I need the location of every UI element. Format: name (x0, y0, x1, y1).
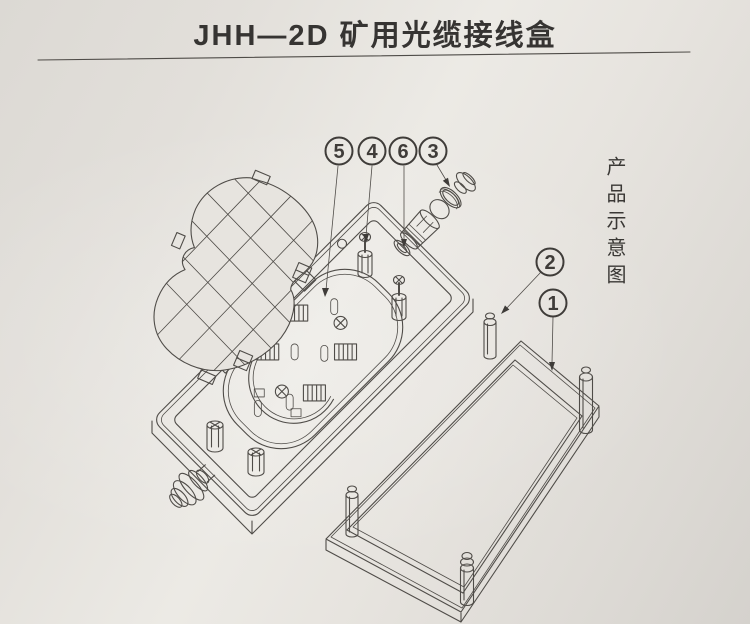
callout-6-number: 6 (397, 141, 408, 163)
box-cover (326, 313, 599, 622)
callout-6: 6 (390, 138, 417, 165)
cover-thickness-edge (331, 345, 595, 608)
gland-seal (426, 196, 453, 223)
gland-nut (437, 184, 465, 211)
cable-gland-exploded (390, 167, 481, 260)
callout-5-number: 5 (333, 141, 344, 163)
cover-post-1 (484, 313, 496, 359)
lid-outline (139, 161, 337, 394)
splice-holder-comb (335, 344, 357, 360)
leaders (322, 165, 555, 371)
catalog-page: JHH—2D 矿用光缆接线盒 产品示意图 (0, 0, 750, 624)
callout-2-number: 2 (544, 252, 555, 274)
leader-2 (501, 272, 541, 314)
cable-gland-side (161, 457, 221, 516)
splice-holder-comb (303, 385, 325, 401)
tray-screw (334, 316, 347, 329)
leader-3 (437, 165, 450, 187)
flange-hole (336, 237, 349, 250)
callout-3: 3 (420, 138, 447, 165)
callout-3-number: 3 (427, 141, 438, 163)
cover-depth-edge (326, 407, 599, 622)
splice-tray-cover (108, 143, 362, 412)
fiber-clips (250, 375, 305, 430)
leader-6 (401, 166, 407, 248)
callout-4-number: 4 (366, 141, 378, 163)
exploded-view-diagram: 5 4 6 3 2 1 (0, 0, 750, 624)
leader-1 (549, 317, 555, 371)
callout-2: 2 (537, 249, 564, 276)
leader-5 (322, 166, 338, 297)
callout-4: 4 (359, 138, 386, 165)
callout-1-number: 1 (547, 293, 558, 315)
standoff-screw-2 (392, 276, 406, 321)
tray-screw (275, 385, 288, 398)
cover-post-4 (461, 553, 474, 606)
standoff-screw-4 (248, 448, 264, 476)
callout-1: 1 (540, 290, 567, 317)
standoff-screw-3 (207, 421, 223, 452)
callout-5: 5 (326, 138, 353, 165)
title-underline (38, 52, 690, 60)
